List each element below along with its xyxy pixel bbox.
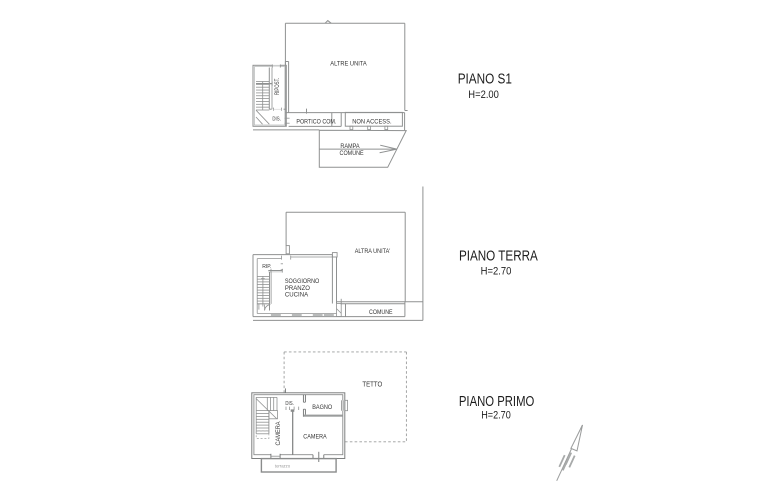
svg-text:PIANO S1: PIANO S1 — [458, 70, 512, 87]
svg-text:CAMERA: CAMERA — [303, 433, 327, 440]
svg-text:RIP.: RIP. — [262, 264, 272, 270]
svg-text:PORTICO COM.: PORTICO COM. — [296, 119, 336, 126]
svg-text:CAMERA: CAMERA — [275, 421, 282, 446]
svg-text:CUCINA: CUCINA — [285, 292, 309, 299]
svg-text:H=2.00: H=2.00 — [468, 89, 499, 101]
svg-text:DIS.: DIS. — [272, 117, 281, 123]
svg-text:H=2.70: H=2.70 — [481, 266, 512, 278]
svg-text:terrazzo: terrazzo — [275, 463, 291, 468]
svg-text:ALTRA UNITA': ALTRA UNITA' — [355, 248, 391, 255]
svg-text:PIANO TERRA: PIANO TERRA — [459, 248, 539, 265]
svg-text:H=2.70: H=2.70 — [481, 410, 511, 422]
svg-text:DIS.: DIS. — [285, 401, 294, 407]
svg-text:NON ACCESS.: NON ACCESS. — [352, 118, 392, 125]
svg-text:RIPOST.: RIPOST. — [275, 78, 281, 95]
svg-text:BAGNO: BAGNO — [312, 404, 332, 411]
svg-text:COMUNE: COMUNE — [340, 150, 364, 157]
svg-text:PIANO PRIMO: PIANO PRIMO — [459, 393, 535, 410]
svg-text:ALTRE UNITA: ALTRE UNITA — [330, 61, 367, 68]
svg-text:COMUNE: COMUNE — [369, 309, 393, 316]
svg-text:TETTO: TETTO — [362, 380, 382, 389]
